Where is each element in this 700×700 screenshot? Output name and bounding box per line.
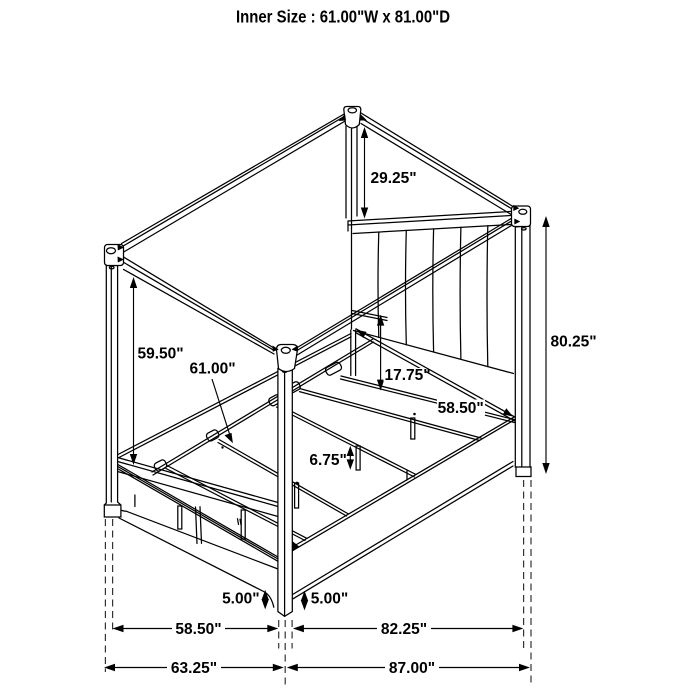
svg-text:17.75": 17.75" (385, 367, 431, 384)
svg-text:29.25": 29.25" (371, 170, 417, 187)
svg-text:5.00": 5.00" (311, 590, 349, 607)
svg-text:5.00": 5.00" (222, 590, 260, 607)
svg-text:63.25": 63.25" (171, 660, 217, 677)
svg-text:58.50": 58.50" (438, 400, 484, 417)
svg-text:87.00": 87.00" (389, 660, 435, 677)
svg-text:6.75": 6.75" (309, 452, 347, 469)
svg-text:58.50": 58.50" (175, 621, 221, 638)
svg-text:82.25": 82.25" (381, 621, 427, 638)
svg-text:59.50": 59.50" (138, 346, 184, 363)
svg-text:61.00": 61.00" (190, 361, 236, 378)
svg-text:Inner Size : 61.00"W x 81.00"D: Inner Size : 61.00"W x 81.00"D (236, 7, 450, 27)
svg-text:80.25": 80.25" (551, 334, 597, 351)
